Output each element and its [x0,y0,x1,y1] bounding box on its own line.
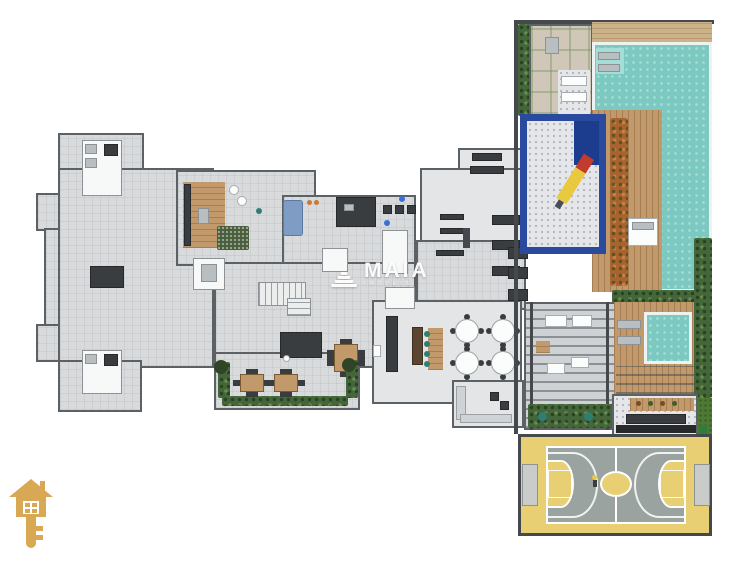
logo-chimney [40,481,45,490]
key-box-right [660,470,684,498]
house-key-icon [6,474,60,560]
player-figure-body [593,480,597,487]
logo-key-stem [26,517,36,548]
watermark-text: MAIA IMÓVEIS [364,262,430,287]
watermark-subtext: IMÓVEIS [364,281,413,287]
hoop-stand-left [522,464,538,506]
dome-layers-icon [330,267,358,287]
key-box-left [548,470,572,498]
logo-key-notch [36,535,43,540]
logo-key-notch [36,526,43,531]
floor-plan-canvas: MAIA IMÓVEIS [0,0,750,564]
watermark: MAIA IMÓVEIS [330,262,430,287]
logo-window [23,501,39,514]
logo-roof [9,479,53,497]
center-circle [600,471,632,497]
watermark-brand: MAIA [364,262,430,279]
hoop-stand-right [694,464,710,506]
